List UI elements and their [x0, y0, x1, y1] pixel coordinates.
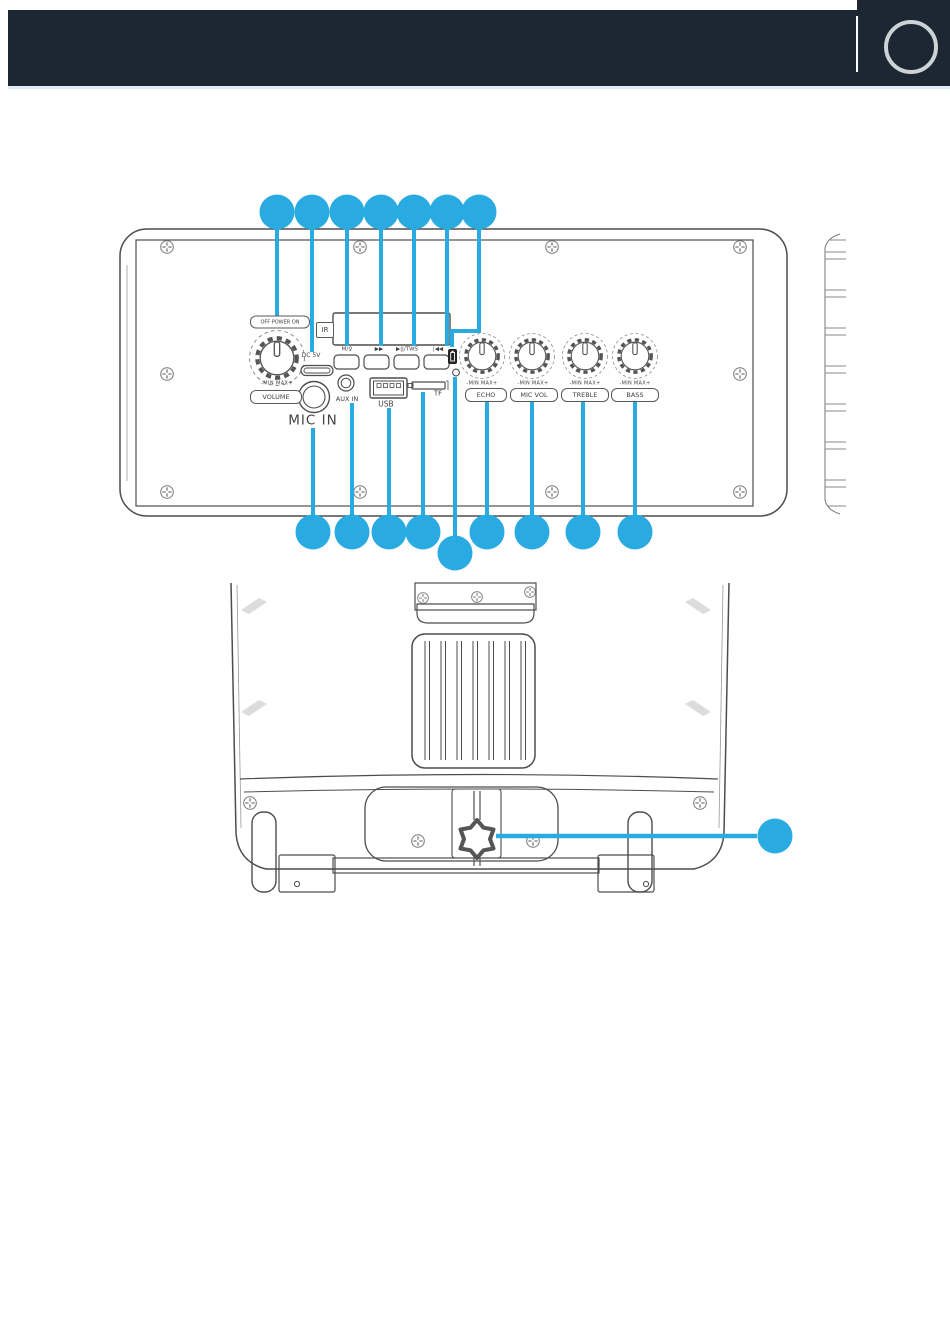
bass-knob: [613, 334, 658, 379]
callout-12: [438, 536, 473, 571]
diagram-artwork: [0, 0, 950, 1339]
play-pause-tws-button: [394, 355, 419, 369]
tf-slot: [408, 381, 448, 390]
star-knob: [461, 820, 494, 858]
tf-label: TF: [434, 391, 442, 398]
dc-5v-label: DC 5V: [302, 353, 321, 359]
foot-right: [598, 855, 654, 892]
callouts-bottom: [296, 377, 653, 571]
callout-4: [364, 195, 399, 230]
treble-range-label: -MIN MAX+: [570, 382, 601, 387]
volume-knob: [250, 331, 305, 386]
volume-range-label: -MIN MAX+: [261, 382, 293, 387]
treble-label: TREBLE: [561, 388, 609, 402]
callout-6: [430, 195, 465, 230]
next-button: [364, 355, 389, 369]
base-screw-left: [244, 797, 257, 810]
callout-5: [397, 195, 432, 230]
led-display: [333, 313, 450, 345]
callout-3: [330, 195, 365, 230]
echo-range-label: -MIN MAX+: [467, 382, 498, 387]
bass-label: BASS: [611, 388, 659, 402]
callout-1: [260, 195, 295, 230]
callout-14: [515, 515, 550, 550]
wheel-right: [628, 812, 652, 892]
mic-vol-knob: [510, 334, 555, 379]
mode-button: [334, 355, 359, 369]
callout-15: [566, 515, 601, 550]
callout-16: [618, 515, 653, 550]
base-band: [240, 775, 718, 780]
mic-vol-label: MIC VOL: [510, 388, 558, 402]
callout-13: [470, 515, 505, 550]
callout-2: [295, 195, 330, 230]
heatsink-vent: [412, 634, 535, 768]
callout-line-battery: [452, 229, 479, 347]
aux-in-label: AUX IN: [336, 396, 359, 403]
stand-mount-plate: [365, 787, 558, 866]
wheel-left: [252, 812, 276, 892]
usb-label: USB: [378, 400, 393, 408]
led-indicator: [453, 369, 460, 376]
dc-5v-port: [301, 366, 333, 376]
power-switch-label: OFF POWER ON: [250, 316, 310, 329]
prev-button: [424, 355, 449, 369]
mic-in-label: MIC IN: [288, 414, 337, 428]
handle-recess: [415, 583, 536, 623]
callout-17: [758, 819, 793, 854]
manual-page: OFF POWER ON -MIN MAX+ VOLUME DC 5V IR M…: [0, 0, 950, 1339]
callout-7: [462, 195, 497, 230]
callout-9: [335, 515, 370, 550]
prev-button-label: |◀◀: [433, 347, 443, 353]
playback-buttons: [334, 355, 449, 369]
ir-sensor-label: IR: [316, 322, 334, 338]
panel-face: [136, 240, 753, 506]
treble-knob: [563, 334, 608, 379]
callout-8: [296, 515, 331, 550]
side-rib-edge: [825, 234, 846, 514]
play-pause-tws-button-label: ▶||/TWS: [396, 347, 418, 353]
next-button-label: ▶▶: [375, 347, 383, 353]
corner-accents: [241, 598, 711, 716]
bass-range-label: -MIN MAX+: [620, 382, 651, 387]
callout-10: [372, 515, 407, 550]
base-screw-right: [694, 797, 707, 810]
callout-11: [406, 515, 441, 550]
echo-label: ECHO: [465, 388, 507, 402]
mic-in-jack: [299, 382, 330, 413]
echo-knob: [460, 334, 505, 379]
aux-in-jack: [338, 375, 354, 391]
mic-vol-range-label: -MIN MAX+: [518, 382, 549, 387]
mode-button-label: M/♀: [342, 347, 353, 353]
foot-left: [279, 855, 335, 892]
callout-rear: [496, 819, 793, 854]
usb-port: [370, 378, 407, 398]
battery-indicator-icon: [448, 349, 457, 364]
volume-label: VOLUME: [250, 390, 302, 404]
rear-view-drawing: [231, 583, 729, 892]
bottom-bar: [333, 858, 599, 873]
